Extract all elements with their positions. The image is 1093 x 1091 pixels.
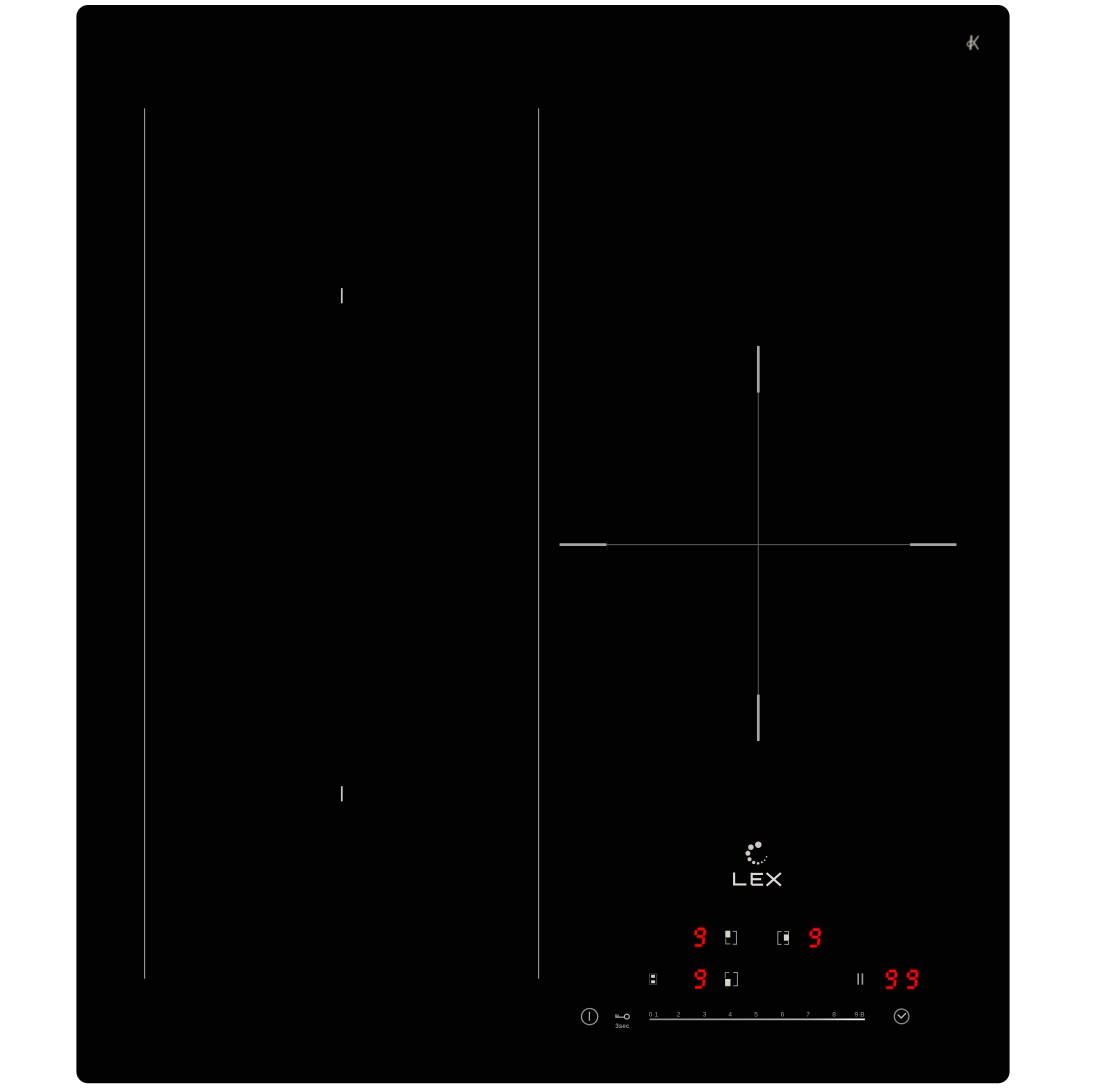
svg-text:6: 6 (781, 1012, 785, 1019)
svg-text:4: 4 (728, 1012, 732, 1019)
svg-text:8: 8 (832, 1012, 836, 1019)
svg-text:3sec: 3sec (615, 1023, 630, 1030)
svg-text:9·B: 9·B (855, 1012, 865, 1019)
svg-text:0·1: 0·1 (649, 1012, 659, 1019)
svg-text:3: 3 (703, 1012, 707, 1019)
svg-text:7: 7 (806, 1012, 810, 1019)
svg-text:2: 2 (677, 1012, 681, 1019)
svg-text:5: 5 (754, 1012, 758, 1019)
